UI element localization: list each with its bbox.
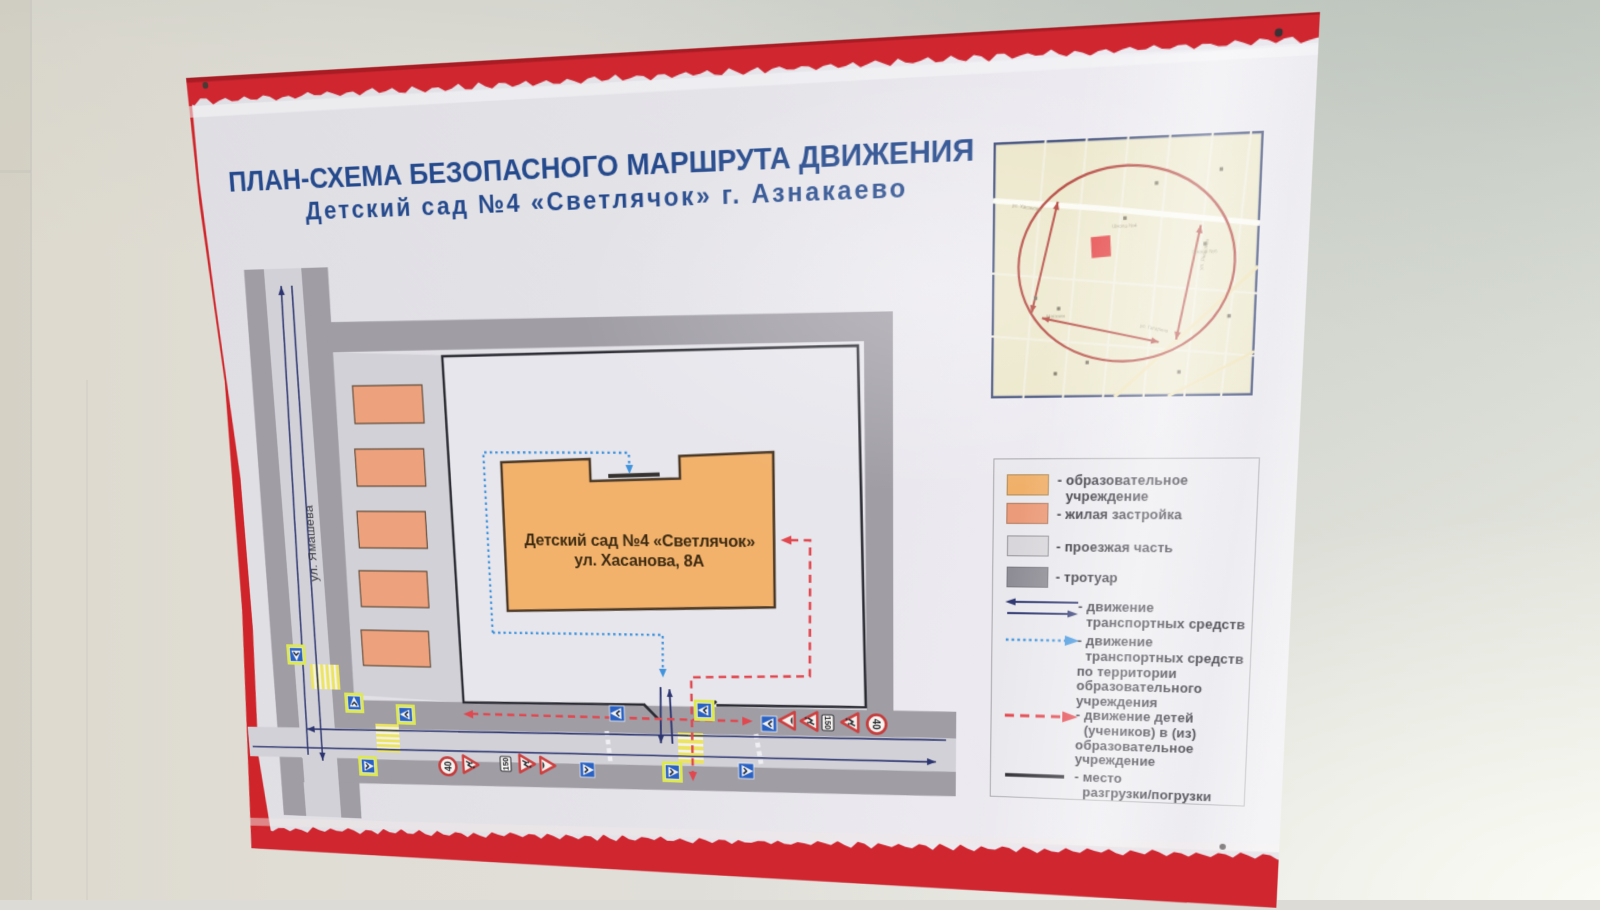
svg-text:ул. Хасанова, 8А: ул. Хасанова, 8А — [574, 550, 705, 571]
svg-text:Школа №4: Школа №4 — [1112, 222, 1137, 229]
svg-text:Детский сад №4 «Светлячок»: Детский сад №4 «Светлячок» — [524, 530, 755, 551]
svg-text:Магазин: Магазин — [1046, 313, 1065, 319]
svg-text:40: 40 — [444, 761, 454, 772]
svg-text:150: 150 — [823, 716, 832, 730]
svg-text:40: 40 — [870, 719, 881, 730]
svg-text:150: 150 — [502, 757, 511, 771]
